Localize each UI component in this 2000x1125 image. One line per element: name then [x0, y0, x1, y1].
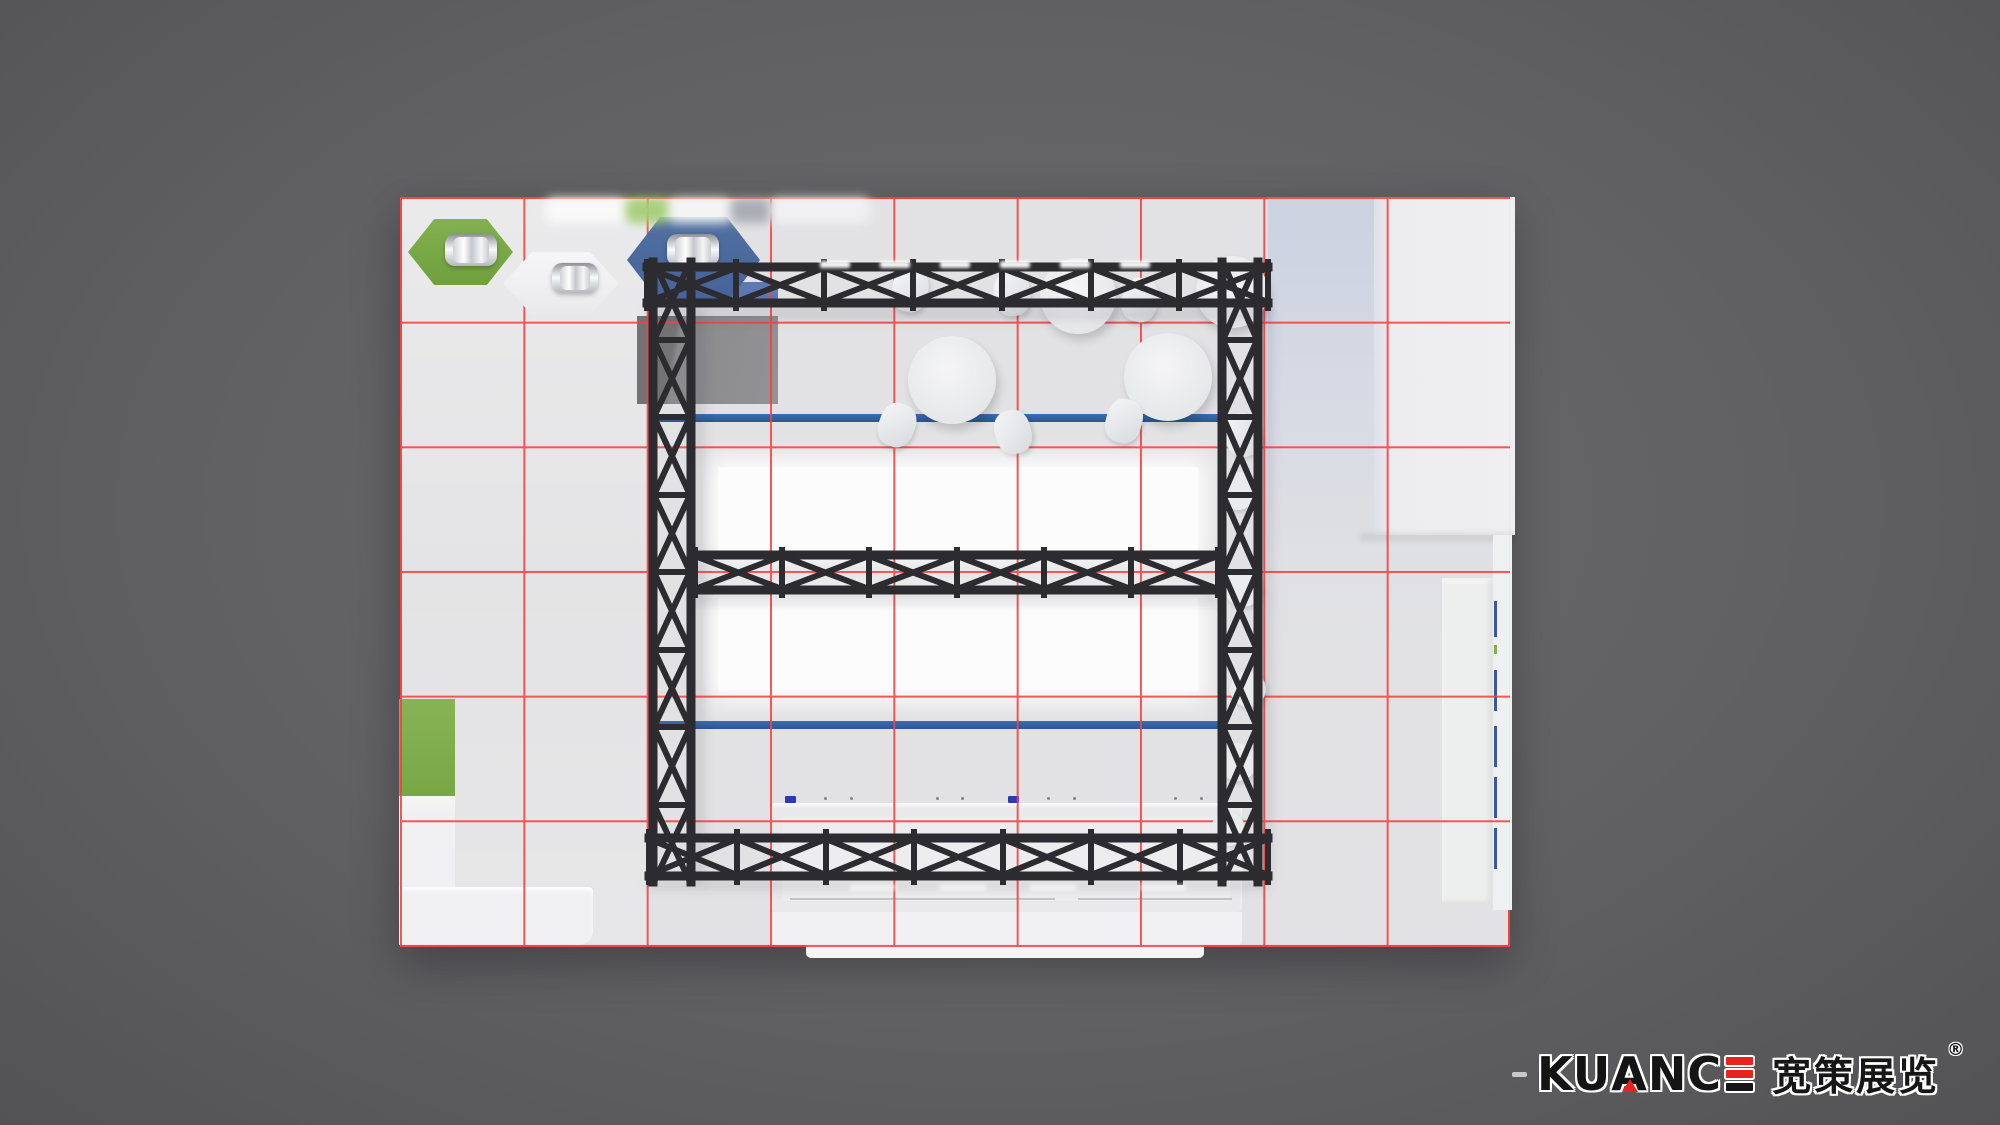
logo-text-ku: KU	[1537, 1051, 1611, 1097]
registered-trademark-icon: ®	[1947, 1040, 1964, 1060]
shelf-item-gray	[730, 198, 772, 223]
shelf-item	[770, 198, 870, 223]
truss-light	[880, 261, 910, 268]
logo-red-triangle	[1622, 1079, 1638, 1092]
logo-chinese-text: 宽策展览	[1772, 1046, 1940, 1102]
truss-light	[940, 261, 970, 268]
truss-light	[1000, 261, 1030, 268]
logo-text-a: A	[1611, 1047, 1648, 1101]
logo-dash	[1512, 1072, 1527, 1077]
kuance-logo: KUANC 宽策展览 ®	[1512, 1042, 1964, 1106]
render-canvas: KUANC 宽策展览 ®	[0, 0, 2000, 1125]
truss-light	[1030, 884, 1076, 891]
truss-light	[940, 884, 986, 891]
truss-structure	[0, 0, 2000, 1125]
logo-text-nc: NC	[1648, 1051, 1722, 1097]
truss-light	[1140, 884, 1186, 891]
e-bar-black	[1726, 1083, 1753, 1091]
shelf-item-green	[625, 198, 670, 223]
truss-light	[820, 261, 850, 268]
logo-wordmark: KUANC	[1537, 1051, 1753, 1097]
e-bar-red	[1726, 1057, 1753, 1065]
shelf-item	[668, 198, 732, 223]
truss-light	[1060, 261, 1090, 268]
truss-light	[850, 884, 896, 891]
logo-letter-e	[1726, 1057, 1753, 1091]
shelf-item	[545, 198, 627, 223]
e-bar-red	[1726, 1070, 1753, 1078]
logo-letter-a-wrap: A	[1611, 1051, 1648, 1097]
truss-light	[1120, 261, 1150, 268]
overhead-shelf-blurred	[545, 198, 870, 223]
